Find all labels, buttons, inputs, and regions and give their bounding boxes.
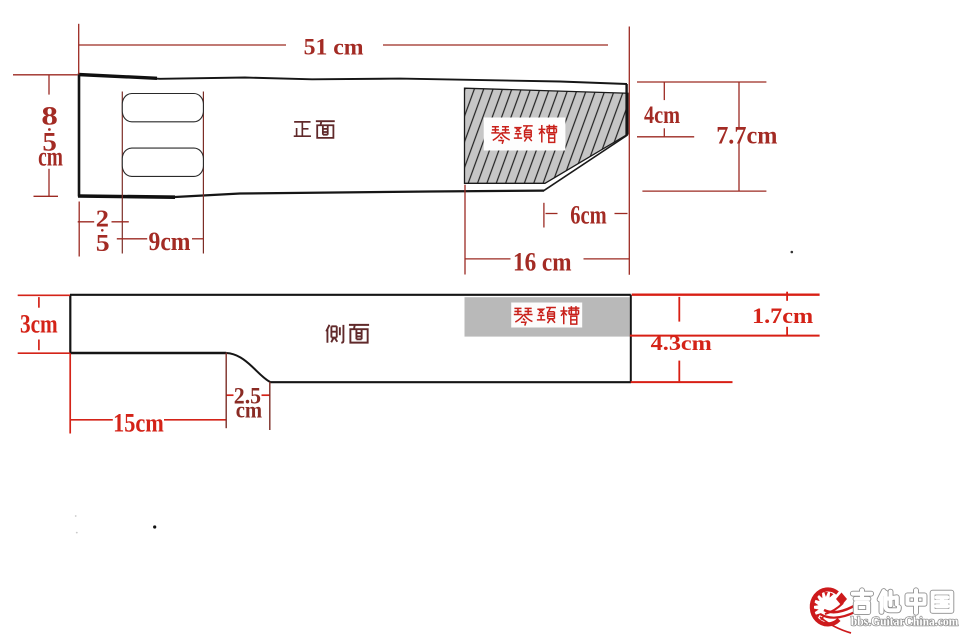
svg-text:51 cm: 51 cm <box>304 35 364 61</box>
svg-text:5: 5 <box>96 231 110 257</box>
svg-text:15cm: 15cm <box>113 408 164 437</box>
svg-text:bbs.GuitarChina.com: bbs.GuitarChina.com <box>851 613 959 628</box>
svg-text:9cm: 9cm <box>149 227 191 256</box>
svg-text:cm: cm <box>38 142 63 172</box>
svg-text:cm: cm <box>236 398 263 424</box>
svg-text:4cm: 4cm <box>644 102 680 129</box>
svg-text:6cm: 6cm <box>570 200 606 230</box>
svg-text:16 cm: 16 cm <box>513 247 572 276</box>
svg-text:3cm: 3cm <box>20 309 58 338</box>
svg-text:2: 2 <box>96 207 109 233</box>
svg-text:7.7cm: 7.7cm <box>716 123 777 150</box>
svg-text:4.3cm: 4.3cm <box>651 331 713 355</box>
svg-text:1.7cm: 1.7cm <box>752 303 813 328</box>
